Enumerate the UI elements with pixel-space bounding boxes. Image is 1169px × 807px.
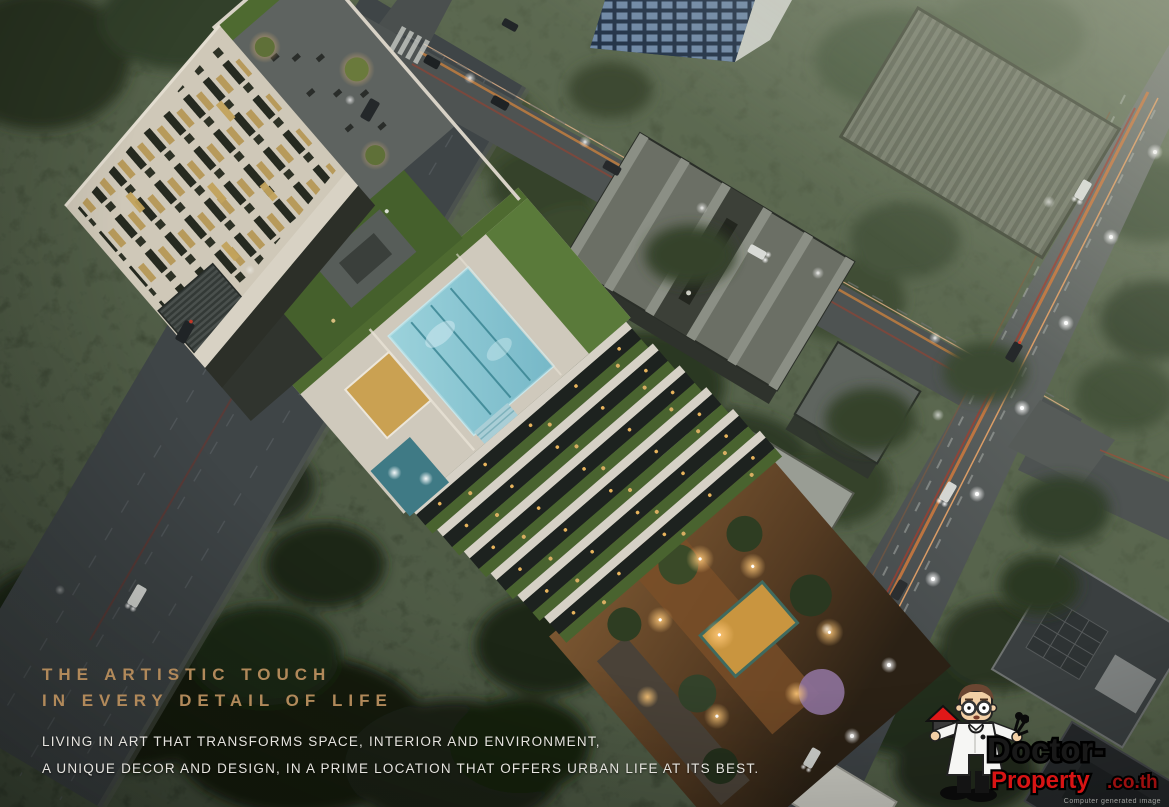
watermark: Doctor- Property .co.th Computer generat… bbox=[919, 677, 1169, 807]
body-line1: LIVING IN ART THAT TRANSFORMS SPACE, INT… bbox=[42, 728, 759, 755]
headline-line1: THE ARTISTIC TOUCH bbox=[42, 662, 759, 688]
hero-image: THE ARTISTIC TOUCH IN EVERY DETAIL OF LI… bbox=[0, 0, 1169, 807]
keys-icon bbox=[1015, 714, 1028, 736]
disclaimer-text: Computer generated image bbox=[1064, 798, 1161, 805]
headline-line2: IN EVERY DETAIL OF LIFE bbox=[42, 688, 759, 714]
marketing-copy: THE ARTISTIC TOUCH IN EVERY DETAIL OF LI… bbox=[42, 662, 759, 782]
watermark-brand: Doctor- Property .co.th bbox=[985, 733, 1167, 797]
brand-doctor-text: Doctor- bbox=[987, 733, 1104, 768]
brand-property-text: Property bbox=[991, 767, 1090, 794]
body-line2: A UNIQUE DECOR AND DESIGN, IN A PRIME LO… bbox=[42, 755, 759, 782]
brand-domain-text: .co.th bbox=[1107, 772, 1158, 793]
